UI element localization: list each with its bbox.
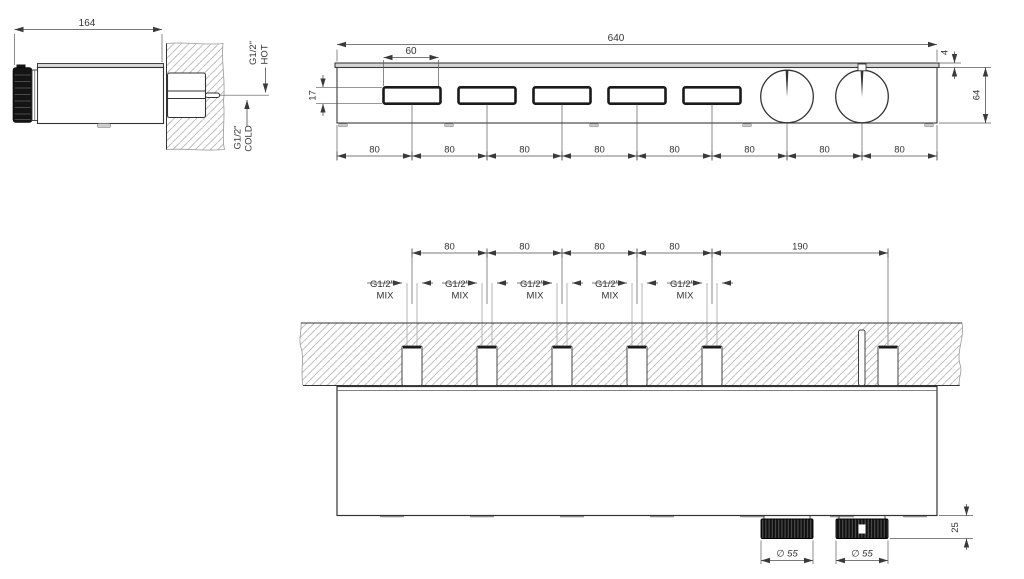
mix-outlet-2	[477, 346, 497, 386]
cold-port-label: COLD	[244, 125, 255, 152]
mix-port-5-size: G1/2"	[670, 279, 694, 290]
thermostatic-mixer-drawing: 164 G1/2" HOT G1/2" COLD	[0, 0, 1024, 579]
mix-outlet-5	[702, 346, 722, 386]
mix-port-2-size: G1/2"	[445, 279, 469, 290]
temperature-knob-plan	[836, 516, 888, 539]
dim-label-80-f1: 80	[369, 145, 380, 156]
side-view: 164 G1/2" HOT G1/2" COLD	[13, 18, 271, 152]
mix-port-1-size: G1/2"	[370, 279, 394, 290]
dim-label-80-f7: 80	[819, 145, 830, 156]
dim-label-80-f5: 80	[669, 145, 680, 156]
dim-label-80-p3: 80	[594, 242, 605, 253]
front-view: 640 60 17 4 64	[308, 33, 992, 161]
panel-feet	[339, 124, 934, 127]
mix-outlet-1	[402, 346, 422, 386]
dim-label-80-f3: 80	[519, 145, 530, 156]
dim-label-25: 25	[950, 522, 961, 533]
mix-port-1-label: MIX	[377, 291, 395, 302]
mix-port-2-label: MIX	[452, 291, 470, 302]
dim-label-60: 60	[405, 46, 417, 57]
mounting-plate	[337, 387, 937, 516]
end-outlet	[878, 346, 898, 386]
temperature-knob-notch	[858, 64, 866, 71]
hot-port-size-label: G1/2"	[248, 41, 259, 65]
hot-port-label: HOT	[260, 44, 271, 64]
dim-label-80-p4: 80	[669, 242, 680, 253]
body-foot	[98, 124, 111, 128]
dim-label-dia55-1: ∅ 55	[776, 549, 798, 560]
inlet-pipe-block	[168, 73, 206, 118]
body-trim-edge	[38, 64, 164, 68]
cartridge-pin-plan	[859, 330, 866, 386]
dim-label-dia55-2: ∅ 55	[851, 549, 873, 560]
panel-trim-shelf	[335, 63, 939, 68]
push-button-1	[384, 87, 441, 103]
dim-label-80-p1: 80	[444, 242, 455, 253]
dim-label-64: 64	[972, 90, 983, 101]
plan-view: 80 80 80 80 190 G1/2" MIX G1/2" MIX G1/2…	[300, 242, 973, 565]
dim-label-80-f4: 80	[594, 145, 605, 156]
valve-body-side	[38, 68, 164, 124]
push-buttons	[384, 87, 741, 103]
push-button-4	[609, 87, 666, 103]
spindle-pin	[206, 93, 220, 98]
push-button-5	[684, 87, 741, 103]
knob-diameter-dims: ∅ 55 ∅ 55	[761, 541, 888, 565]
dim-label-190: 190	[792, 242, 808, 253]
dim-label-4: 4	[940, 50, 951, 55]
mix-port-3-label: MIX	[527, 291, 545, 302]
cold-port-size-label: G1/2"	[233, 126, 244, 150]
technical-drawing-page: 164 G1/2" HOT G1/2" COLD	[0, 0, 1024, 579]
dim-label-80-p2: 80	[519, 242, 530, 253]
dim-label-80-f8: 80	[894, 145, 905, 156]
dim-label-17: 17	[308, 90, 319, 101]
push-button-3	[534, 87, 591, 103]
dim-label-164: 164	[79, 18, 96, 29]
dim-label-640: 640	[608, 33, 625, 44]
mix-port-5-label: MIX	[677, 291, 695, 302]
push-button-2	[459, 87, 516, 103]
dim-label-80-f2: 80	[444, 145, 455, 156]
mix-outlet-4	[627, 346, 647, 386]
mix-port-4-label: MIX	[602, 291, 620, 302]
mix-outlet-3	[552, 346, 572, 386]
volume-knob-plan	[761, 516, 813, 539]
dim-label-80-f6: 80	[744, 145, 755, 156]
mix-port-3-size: G1/2"	[520, 279, 544, 290]
temperature-indicator-window	[859, 525, 866, 534]
mix-port-4-size: G1/2"	[595, 279, 619, 290]
